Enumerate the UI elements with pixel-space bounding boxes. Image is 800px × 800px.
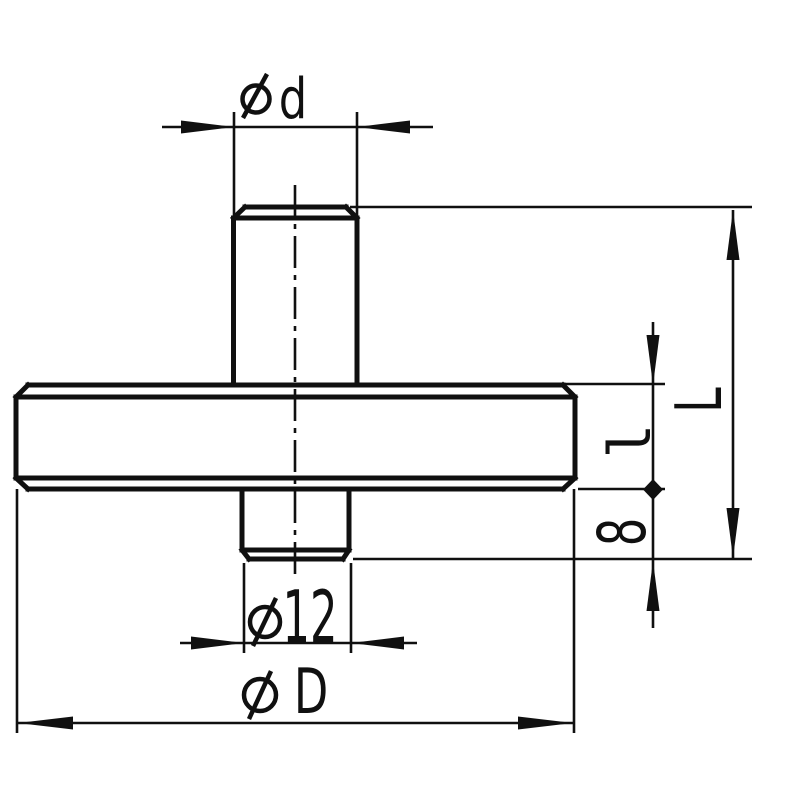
dimension-stub-diameter: 12 — [180, 563, 417, 660]
l-label: l — [596, 424, 664, 459]
diameter-symbol — [244, 671, 276, 719]
disc-diameter-label: D — [294, 656, 328, 728]
diameter-symbol — [243, 74, 270, 118]
diameter-symbol — [250, 598, 280, 646]
stub-length-label: 8 — [585, 518, 661, 547]
arrowhead-left-icon — [351, 637, 404, 650]
dimension-stem-diameter: d — [162, 66, 433, 227]
arrowhead-down-icon — [647, 335, 660, 385]
dimension-l: l — [563, 322, 665, 628]
arrowhead-down-icon — [727, 508, 740, 558]
arrowhead-left-icon — [357, 121, 410, 134]
arrowhead-right-icon — [191, 637, 244, 650]
arrowhead-up-icon — [647, 561, 660, 611]
total-length-label: L — [662, 387, 737, 413]
technical-drawing: d L l 8 — [0, 0, 800, 800]
arrowhead-right-icon — [181, 121, 234, 134]
arrowhead-up-icon — [727, 210, 740, 260]
drawing-canvas: d L l 8 — [0, 0, 800, 800]
stub-diameter-label: 12 — [283, 577, 338, 661]
stem-diameter-label: d — [279, 66, 307, 131]
arrowhead-right-icon — [518, 717, 573, 730]
arrowhead-left-icon — [18, 717, 73, 730]
